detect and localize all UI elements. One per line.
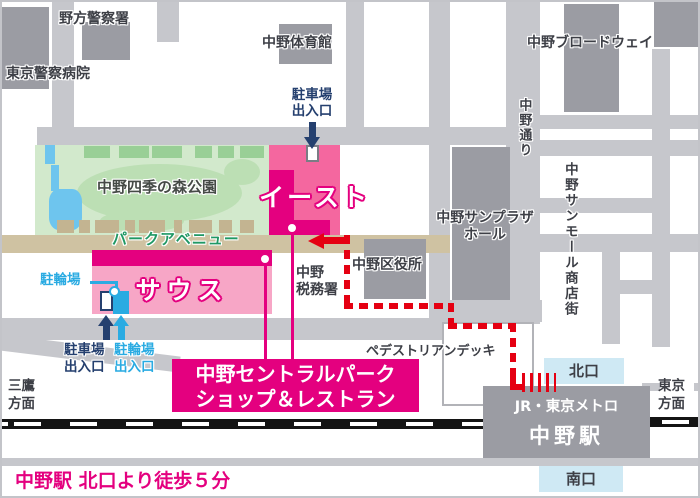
- mitaka-direction-line2: 方面: [8, 395, 35, 413]
- park-avenue-label: パークアベニュー: [112, 231, 240, 249]
- east-label: イースト: [257, 183, 372, 213]
- south-callout-marker: [258, 252, 272, 266]
- bicycle-tag-label: 駐輪場: [40, 273, 81, 289]
- central-park-callout-line1: 中野セントラルパーク: [172, 362, 419, 387]
- south-building-top: [92, 250, 272, 266]
- road-vertical-center: [346, 2, 364, 145]
- south-parking-arrow-shaft: [103, 326, 110, 340]
- south-parking-entrance-line2: 出入口: [64, 359, 105, 376]
- east-parking-entrance-line1: 駐車場: [280, 88, 344, 104]
- park-lawn-blob-small: [224, 159, 260, 185]
- route-segment-right-1: [344, 303, 454, 309]
- access-map: 中野四季の森公園 パークアベニュー 野方警察署 東京警察病院 中野体育館 中野ブ…: [0, 0, 700, 498]
- broadway-building: [564, 4, 619, 112]
- station-operator-label: JR・東京メトロ: [483, 395, 650, 416]
- east-callout-line: [291, 232, 294, 360]
- east-callout-marker: [285, 221, 299, 235]
- sunmall-label: 中野サンモール商店街: [561, 162, 577, 317]
- tokyo-direction-label: 東京 方面: [658, 377, 685, 413]
- road-horizontal-east-1: [540, 140, 700, 156]
- south-bicycle-arrow-shaft: [118, 326, 125, 340]
- mitaka-direction-label: 三鷹 方面: [8, 377, 35, 413]
- road-stub-tokyo-right: [694, 383, 700, 391]
- police-hospital-label: 東京警察病院: [6, 66, 90, 83]
- tokyo-direction-line1: 東京: [658, 377, 685, 395]
- tokyo-direction-line2: 方面: [658, 395, 685, 413]
- road-horizontal-east-2: [540, 198, 652, 213]
- route-arrow-tail: [324, 237, 346, 244]
- caption-text: 中野駅 北口より徒歩５分: [15, 470, 230, 492]
- road-vertical-far-east: [652, 49, 670, 347]
- railway-ties: [650, 420, 700, 424]
- tax-office-label-line2: 税務署: [296, 282, 338, 299]
- south-parking-entrance-label: 駐車場 出入口: [64, 342, 105, 376]
- ward-office-label: 中野区役所: [352, 257, 437, 274]
- sunplaza-label-line2: ホール: [430, 227, 540, 244]
- road-horizontal-north: [37, 127, 507, 145]
- south-callout-line: [264, 262, 267, 360]
- road-vertical-stub-north: [157, 2, 179, 42]
- north-exit-box: 北口: [544, 358, 624, 384]
- railway-ties: [2, 422, 483, 426]
- route-segment-right-2: [448, 323, 516, 329]
- route-arrow-left-icon: [308, 233, 324, 249]
- road-along-station-south: [2, 458, 700, 466]
- park-stream: [51, 165, 59, 191]
- route-stairs-icon: [522, 373, 556, 392]
- south-bicycle-arrow-up-icon: [113, 315, 129, 326]
- park-hedge: [240, 146, 264, 158]
- park-hedge: [119, 146, 149, 158]
- railway-west: [2, 419, 483, 429]
- park-water-strip: [45, 145, 55, 164]
- pedestrian-deck-label: ペデストリアンデッキ: [366, 344, 495, 359]
- park-hedge: [195, 146, 212, 158]
- park-terrace: [240, 220, 254, 233]
- park-hedge: [152, 146, 182, 158]
- park-name-label: 中野四季の森公園: [97, 179, 227, 197]
- south-label: サウス: [117, 276, 247, 306]
- south-parking-arrow-up-icon: [98, 315, 114, 326]
- gymnasium-label: 中野体育館: [262, 35, 332, 52]
- sunplaza-label: 中野サンプラザ ホール: [430, 210, 540, 243]
- park-terrace: [79, 220, 90, 233]
- south-parking-entrance-line1: 駐車場: [64, 342, 105, 359]
- route-segment-down-1: [344, 235, 350, 309]
- nakano-dori-label: 中野通り: [516, 98, 531, 158]
- east-parking-arrow-down-icon: [304, 137, 320, 149]
- route-segment-down-3: [510, 323, 516, 376]
- mitaka-direction-line1: 三鷹: [8, 377, 35, 395]
- east-parking-arrow-shaft: [309, 122, 316, 137]
- nogata-police-label: 野方警察署: [59, 11, 129, 28]
- tax-office-label: 中野 税務署: [296, 265, 338, 298]
- station-name-label: 中野駅: [483, 420, 650, 450]
- park-hedge: [218, 146, 234, 158]
- park-hedge: [84, 146, 110, 158]
- northeast-corner-building: [654, 2, 700, 47]
- east-parking-entrance-label: 駐車場 出入口: [280, 88, 344, 120]
- tax-office-label-line1: 中野: [296, 265, 338, 282]
- road-vertical-sunmall-side: [602, 252, 620, 344]
- south-bicycle-entrance-line1: 駐輪場: [114, 342, 155, 359]
- bicycle-marker: [109, 286, 120, 297]
- road-south-of-complex: [2, 318, 452, 340]
- south-exit-box: 南口: [539, 466, 623, 492]
- bicycle-tag-line-h: [90, 281, 118, 284]
- road-stub-east: [620, 280, 652, 294]
- park-terrace: [57, 220, 74, 233]
- sunplaza-label-line1: 中野サンプラザ: [430, 210, 540, 227]
- south-bicycle-entrance-line2: 出入口: [114, 359, 155, 376]
- road-below-sunplaza: [450, 300, 542, 322]
- broadway-label: 中野ブロードウェイ: [527, 35, 653, 52]
- central-park-callout: 中野セントラルパーク ショップ＆レストラン: [172, 359, 419, 412]
- nogata-police-building: [82, 22, 130, 60]
- nakano-station-building: JR・東京メトロ 中野駅: [483, 386, 650, 458]
- south-bicycle-entrance-label: 駐輪場 出入口: [114, 342, 155, 376]
- route-corner-horizontal: [510, 384, 522, 390]
- central-park-callout-line2: ショップ＆レストラン: [172, 387, 419, 412]
- road-horizontal-northeast: [540, 115, 700, 129]
- railway-east: [650, 417, 700, 427]
- east-parking-entrance-line2: 出入口: [280, 104, 344, 120]
